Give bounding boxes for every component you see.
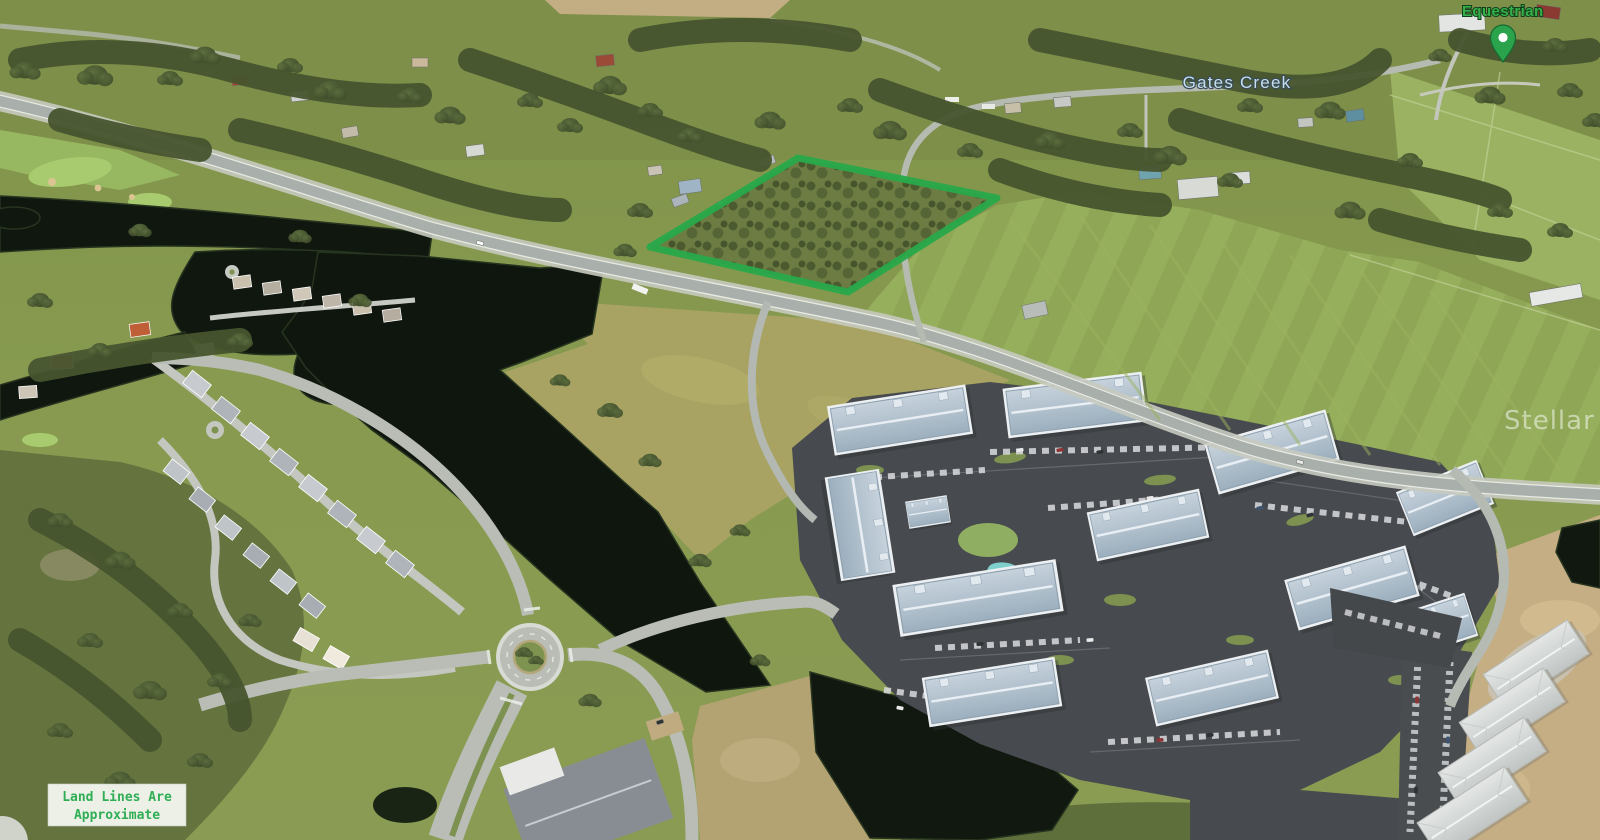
stellarmls-watermark: Stellar MLS <box>1504 406 1600 436</box>
courtyard-lawn <box>958 523 1018 557</box>
roundabout <box>496 623 564 691</box>
aerial-imagery: Gates Creek Equestrian Stellar MLS Land … <box>0 0 1600 840</box>
disclaimer-line1: Land Lines Are <box>62 790 172 805</box>
disclaimer-box: Land Lines Are Approximate <box>48 784 186 826</box>
aerial-screenshot: Gates Creek Equestrian Stellar MLS Land … <box>0 0 1600 840</box>
gates-creek-label: Gates Creek <box>1183 73 1292 92</box>
equestrian-label: Equestrian <box>1462 3 1544 20</box>
disclaimer-line2: Approximate <box>74 808 160 823</box>
